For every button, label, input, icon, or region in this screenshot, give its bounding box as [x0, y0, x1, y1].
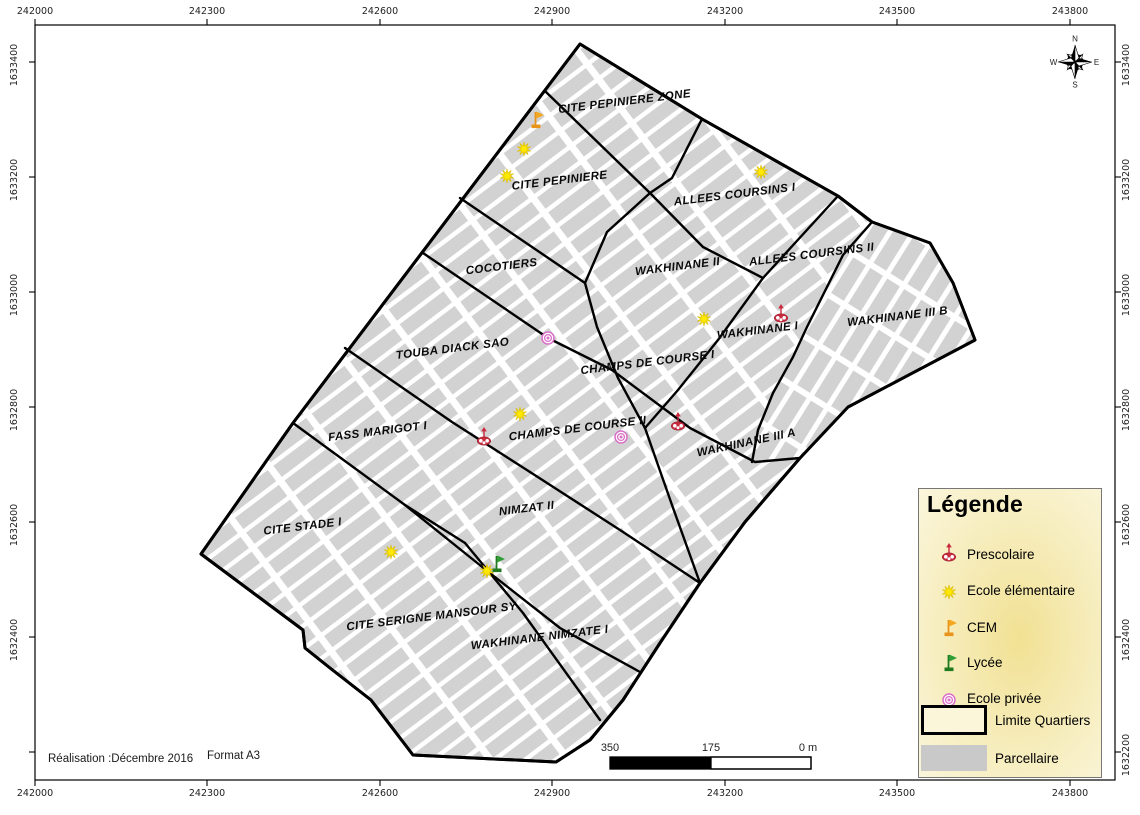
scale-bar-label: 350	[601, 742, 619, 754]
legend-swatch-limite-quartiers	[921, 705, 987, 735]
scale-bar-label: 175	[702, 742, 720, 754]
coordinate-label: 242900	[534, 6, 570, 17]
coordinate-label: 1632200	[1121, 734, 1132, 776]
coordinate-label: 242600	[362, 6, 398, 17]
coordinate-label: 242600	[362, 788, 398, 799]
scale-bar-label: 0 m	[799, 742, 817, 754]
coordinate-label: 242000	[17, 6, 53, 17]
legend-item-cem: CEM	[933, 612, 997, 642]
legend-item-parcellaire: Parcellaire	[933, 743, 1059, 773]
legend-item-label: Ecole élémentaire	[967, 583, 1075, 598]
legend-item-label: Limite Quartiers	[995, 713, 1090, 728]
coordinate-label: 243800	[1052, 6, 1088, 17]
coordinate-label: 1632600	[9, 504, 20, 546]
marker-ecole-privee	[542, 332, 554, 344]
compass-w-label: W	[1050, 58, 1058, 67]
prescolaire-icon	[933, 539, 967, 569]
realisation-note: Réalisation :Décembre 2016	[48, 753, 193, 765]
coordinate-label: 243200	[707, 6, 743, 17]
coordinate-label: 1633200	[1121, 159, 1132, 201]
legend-item-label: Prescolaire	[967, 547, 1035, 562]
coordinate-label: 242300	[189, 6, 225, 17]
legend-title: Légende	[927, 491, 1023, 518]
legend-item-lycee: Lycée	[933, 647, 1003, 677]
coordinate-label: 1632600	[1121, 504, 1132, 546]
coordinate-label: 1633400	[1121, 44, 1132, 86]
coordinate-label: 243800	[1052, 788, 1088, 799]
coordinate-label: 1632800	[1121, 389, 1132, 431]
lycee-icon	[933, 647, 967, 677]
quartier-zone-outline	[201, 44, 975, 762]
coordinate-label: 1633400	[9, 44, 20, 86]
legend-item-prescolaire: Prescolaire	[933, 539, 1035, 569]
ecole-elementaire-icon	[933, 575, 967, 605]
coordinate-label: 242900	[534, 788, 570, 799]
legend-item-label: Ecole privée	[967, 691, 1041, 706]
coordinate-label: 243500	[879, 6, 915, 17]
legend-swatch-parcellaire	[921, 745, 987, 771]
coordinate-label: 1633200	[9, 159, 20, 201]
coordinate-label: 1633000	[1121, 274, 1132, 316]
map-document: CITE PEPINIERE ZONECITE PEPINIEREALLEES …	[0, 0, 1140, 815]
compass-e-label: E	[1094, 58, 1099, 67]
legend: Légende PrescolaireEcole élémentaireCEML…	[918, 488, 1102, 778]
coordinate-label: 1632800	[9, 389, 20, 431]
coordinate-label: 243500	[879, 788, 915, 799]
coordinate-label: 1632400	[9, 619, 20, 661]
compass-s-label: S	[1072, 81, 1077, 90]
scale-bar: 3501750 m	[601, 742, 817, 769]
coordinate-label: 1632400	[1121, 619, 1132, 661]
cem-icon	[933, 612, 967, 642]
marker-ecole-privee	[615, 431, 627, 443]
legend-item-label: Lycée	[967, 655, 1003, 670]
legend-item-ecole-elementaire: Ecole élémentaire	[933, 575, 1075, 605]
coordinate-label: 1633000	[9, 274, 20, 316]
format-note: Format A3	[207, 750, 260, 762]
coordinate-label: 242000	[17, 788, 53, 799]
legend-item-limite-quartiers: Limite Quartiers	[933, 705, 1090, 735]
legend-item-label: CEM	[967, 620, 997, 635]
compass-n-label: N	[1072, 35, 1078, 44]
coordinate-label: 243200	[707, 788, 743, 799]
legend-item-label: Parcellaire	[995, 751, 1059, 766]
coordinate-label: 242300	[189, 788, 225, 799]
compass-rose: NESW	[1050, 35, 1099, 90]
